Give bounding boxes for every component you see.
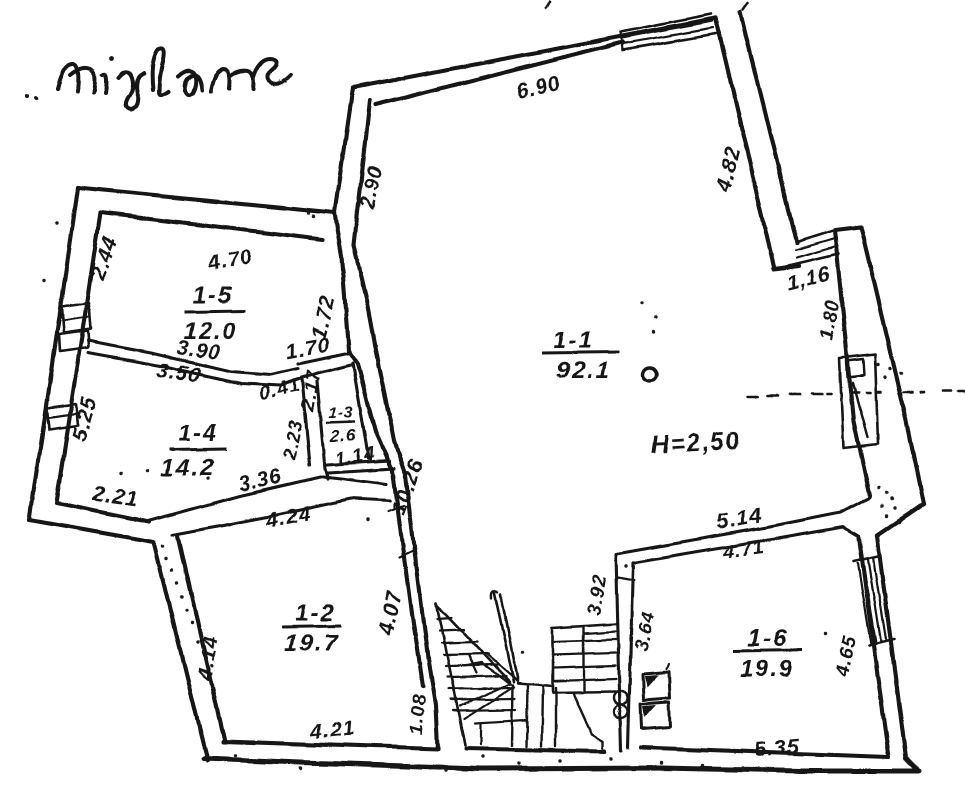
svg-text:1.08: 1.08 xyxy=(405,692,429,735)
svg-text:1-3: 1-3 xyxy=(327,404,353,421)
svg-text:19.7: 19.7 xyxy=(284,629,339,656)
svg-text:14.2: 14.2 xyxy=(161,454,216,481)
svg-text:H=2,50: H=2,50 xyxy=(650,427,741,459)
svg-text:5.35: 5.35 xyxy=(753,734,800,761)
svg-text:1-4: 1-4 xyxy=(178,419,219,446)
svg-text:2.6: 2.6 xyxy=(329,426,357,445)
svg-text:92.1: 92.1 xyxy=(556,356,611,383)
svg-text:1-2: 1-2 xyxy=(295,599,336,626)
svg-text:4.21: 4.21 xyxy=(308,716,356,744)
svg-text:1-6: 1-6 xyxy=(747,624,788,651)
svg-text:1-5: 1-5 xyxy=(192,281,233,308)
svg-text:1-1: 1-1 xyxy=(553,326,594,353)
svg-text:19.9: 19.9 xyxy=(739,655,794,682)
